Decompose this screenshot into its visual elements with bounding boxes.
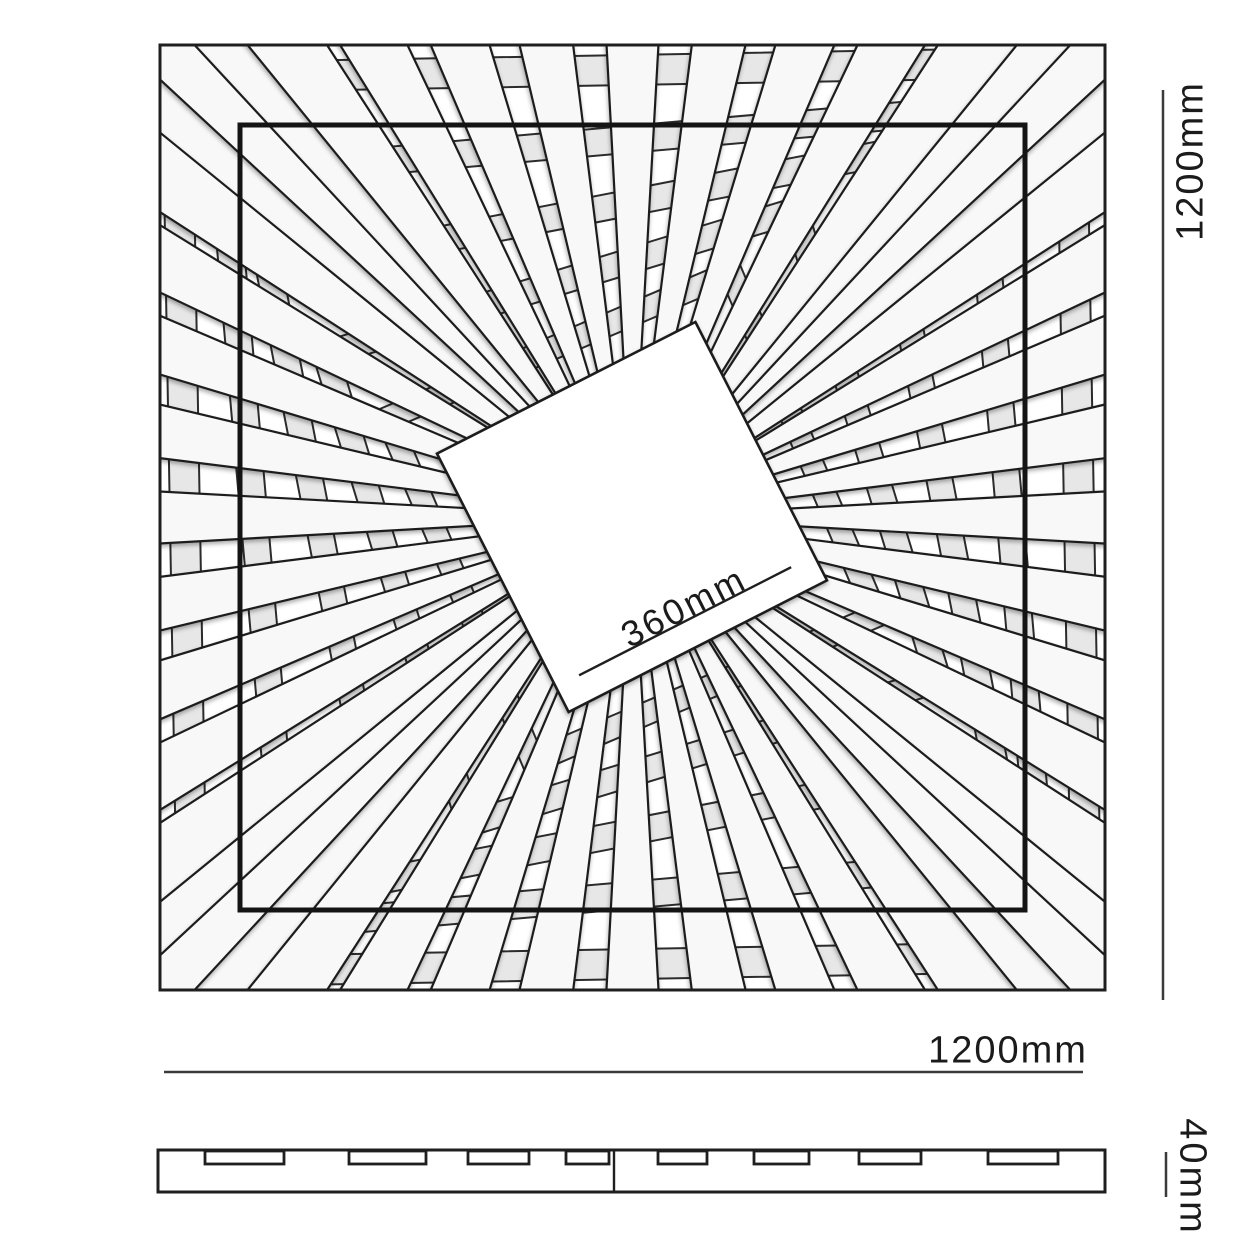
technical-drawing-page: 1200mm 1200mm 360mm 40mm bbox=[0, 0, 1250, 1250]
profile-notch bbox=[658, 1151, 707, 1164]
profile-notch bbox=[205, 1151, 284, 1164]
profile-notch bbox=[468, 1151, 529, 1164]
dimension-label-thickness: 40mm bbox=[1171, 1118, 1214, 1236]
profile-notch bbox=[859, 1151, 921, 1164]
dimension-label-panel-width: 1200mm bbox=[928, 1030, 1088, 1073]
profile-notch bbox=[754, 1151, 809, 1164]
profile-body bbox=[158, 1150, 1105, 1192]
side-profile-view bbox=[158, 1150, 1105, 1192]
profile-notch bbox=[566, 1151, 609, 1164]
profile-notch bbox=[988, 1151, 1058, 1164]
profile-notch bbox=[349, 1151, 426, 1164]
dimension-label-panel-height: 1200mm bbox=[1170, 81, 1213, 241]
